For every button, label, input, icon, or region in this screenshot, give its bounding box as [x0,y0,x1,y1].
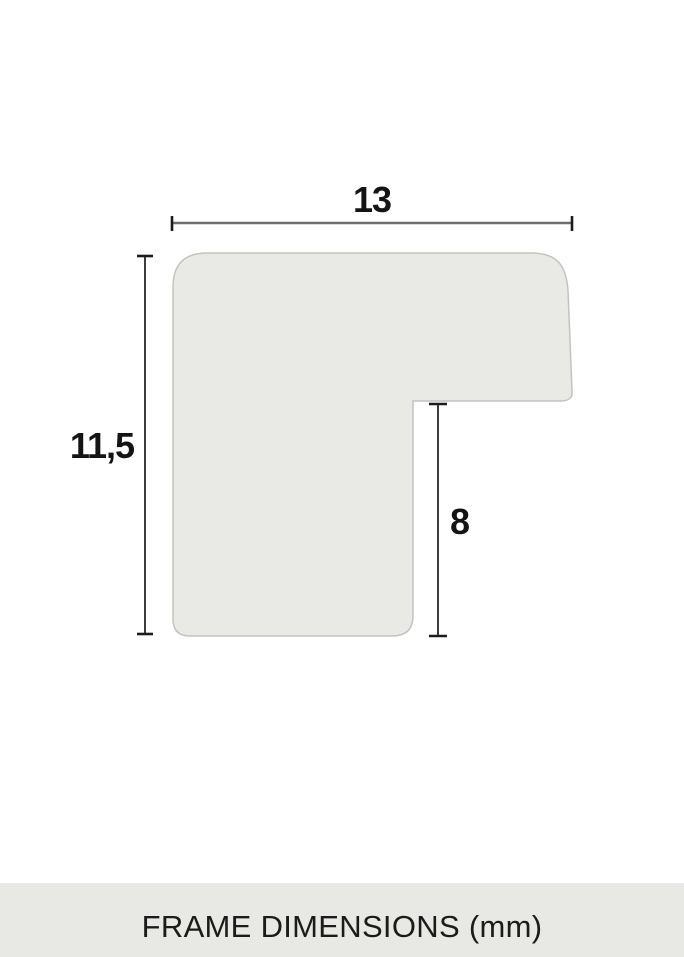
footer-title: FRAME DIMENSIONS (mm) [142,909,543,945]
notch-dimension [429,404,447,636]
frame-profile-shape [173,253,572,636]
footer-bar: FRAME DIMENSIONS (mm) [0,883,684,957]
height-dimension [137,256,153,634]
frame-dimension-diagram-page: 13 11,5 8 FRAME DIMENSIONS (mm) [0,0,684,957]
notch-dimension-label: 8 [450,503,469,541]
height-dimension-label: 11,5 [0,427,134,465]
width-dimension-label: 13 [172,181,572,219]
